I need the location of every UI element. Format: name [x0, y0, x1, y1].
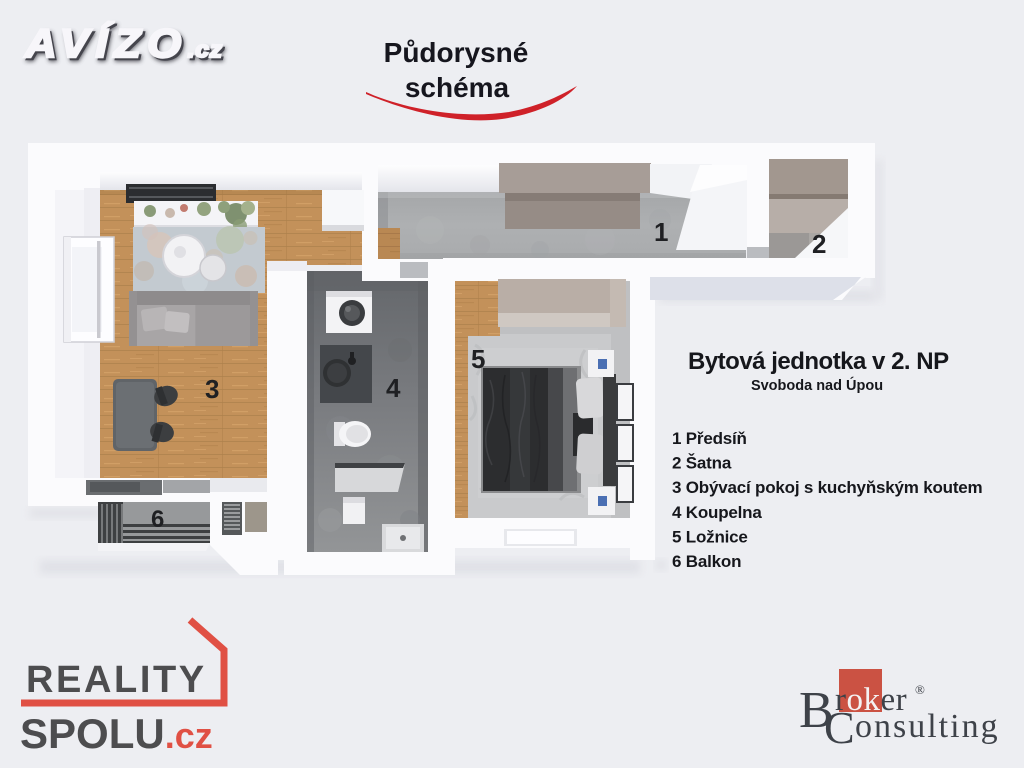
svg-text:onsulting: onsulting: [855, 708, 1000, 745]
svg-text:REALITY: REALITY: [26, 659, 207, 701]
svg-text:C: C: [824, 702, 855, 753]
svg-text:SPOLU.cz: SPOLU.cz: [20, 710, 213, 757]
svg-text:3: 3: [205, 374, 219, 404]
svg-text:1: 1: [654, 217, 668, 247]
svg-text:6 Balkon: 6 Balkon: [672, 552, 741, 571]
svg-text:1 Předsíň: 1 Předsíň: [672, 429, 747, 448]
svg-text:Bytová jednotka v 2. NP: Bytová jednotka v 2. NP: [688, 348, 949, 375]
svg-text:Půdorysné: Půdorysné: [384, 37, 529, 68]
svg-text:2: 2: [812, 229, 826, 259]
svg-text:4 Koupelna: 4 Koupelna: [672, 503, 762, 522]
svg-text:2 Šatna: 2 Šatna: [672, 454, 732, 473]
svg-text:6: 6: [151, 506, 164, 533]
svg-text:5 Ložnice: 5 Ložnice: [672, 527, 748, 546]
svg-text:Svoboda nad Úpou: Svoboda nad Úpou: [751, 376, 883, 394]
svg-text:5: 5: [471, 344, 485, 374]
svg-text:®: ®: [915, 682, 925, 697]
svg-text:3 Obývací pokoj s kuchyňským k: 3 Obývací pokoj s kuchyňským koutem: [672, 478, 983, 497]
svg-text:schéma: schéma: [405, 72, 510, 103]
svg-text:4: 4: [386, 373, 401, 403]
